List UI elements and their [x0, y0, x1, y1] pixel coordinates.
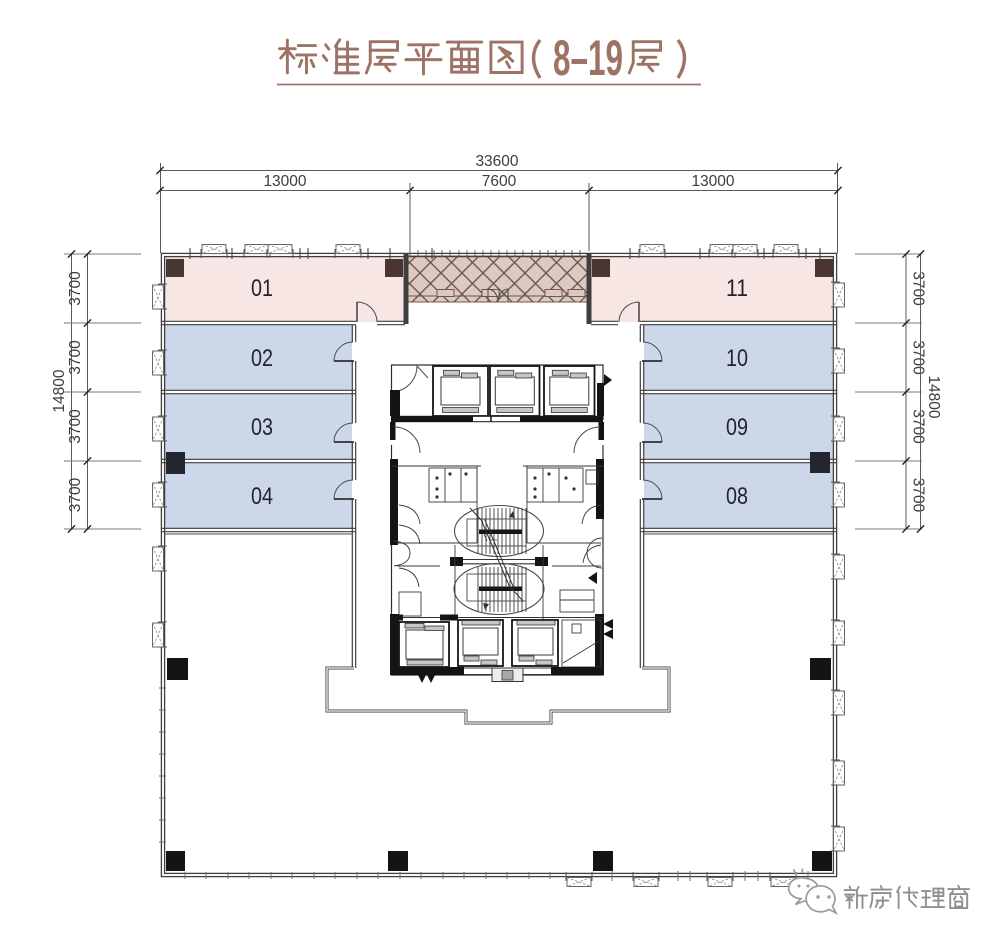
svg-text:3700: 3700: [67, 340, 84, 375]
svg-text:7600: 7600: [482, 173, 517, 190]
svg-text:13000: 13000: [263, 173, 306, 190]
svg-text:3700: 3700: [910, 340, 927, 375]
svg-text:3700: 3700: [67, 409, 84, 444]
svg-text:10: 10: [726, 345, 748, 372]
svg-text:01: 01: [251, 275, 273, 302]
svg-text:3700: 3700: [910, 271, 927, 306]
svg-text:3700: 3700: [910, 478, 927, 513]
svg-text:33600: 33600: [475, 153, 518, 170]
svg-text:3700: 3700: [67, 271, 84, 306]
svg-text:3700: 3700: [910, 409, 927, 444]
svg-text:11: 11: [726, 275, 748, 302]
svg-text:8–19: 8–19: [553, 30, 623, 86]
svg-text:14800: 14800: [51, 369, 68, 412]
svg-text:08: 08: [726, 483, 748, 510]
svg-text:03: 03: [251, 414, 273, 441]
svg-text:14800: 14800: [925, 375, 942, 418]
svg-text:13000: 13000: [691, 173, 734, 190]
svg-text:04: 04: [251, 483, 273, 510]
svg-text:3700: 3700: [67, 477, 84, 512]
svg-text:09: 09: [726, 414, 748, 441]
svg-text:02: 02: [251, 345, 273, 372]
